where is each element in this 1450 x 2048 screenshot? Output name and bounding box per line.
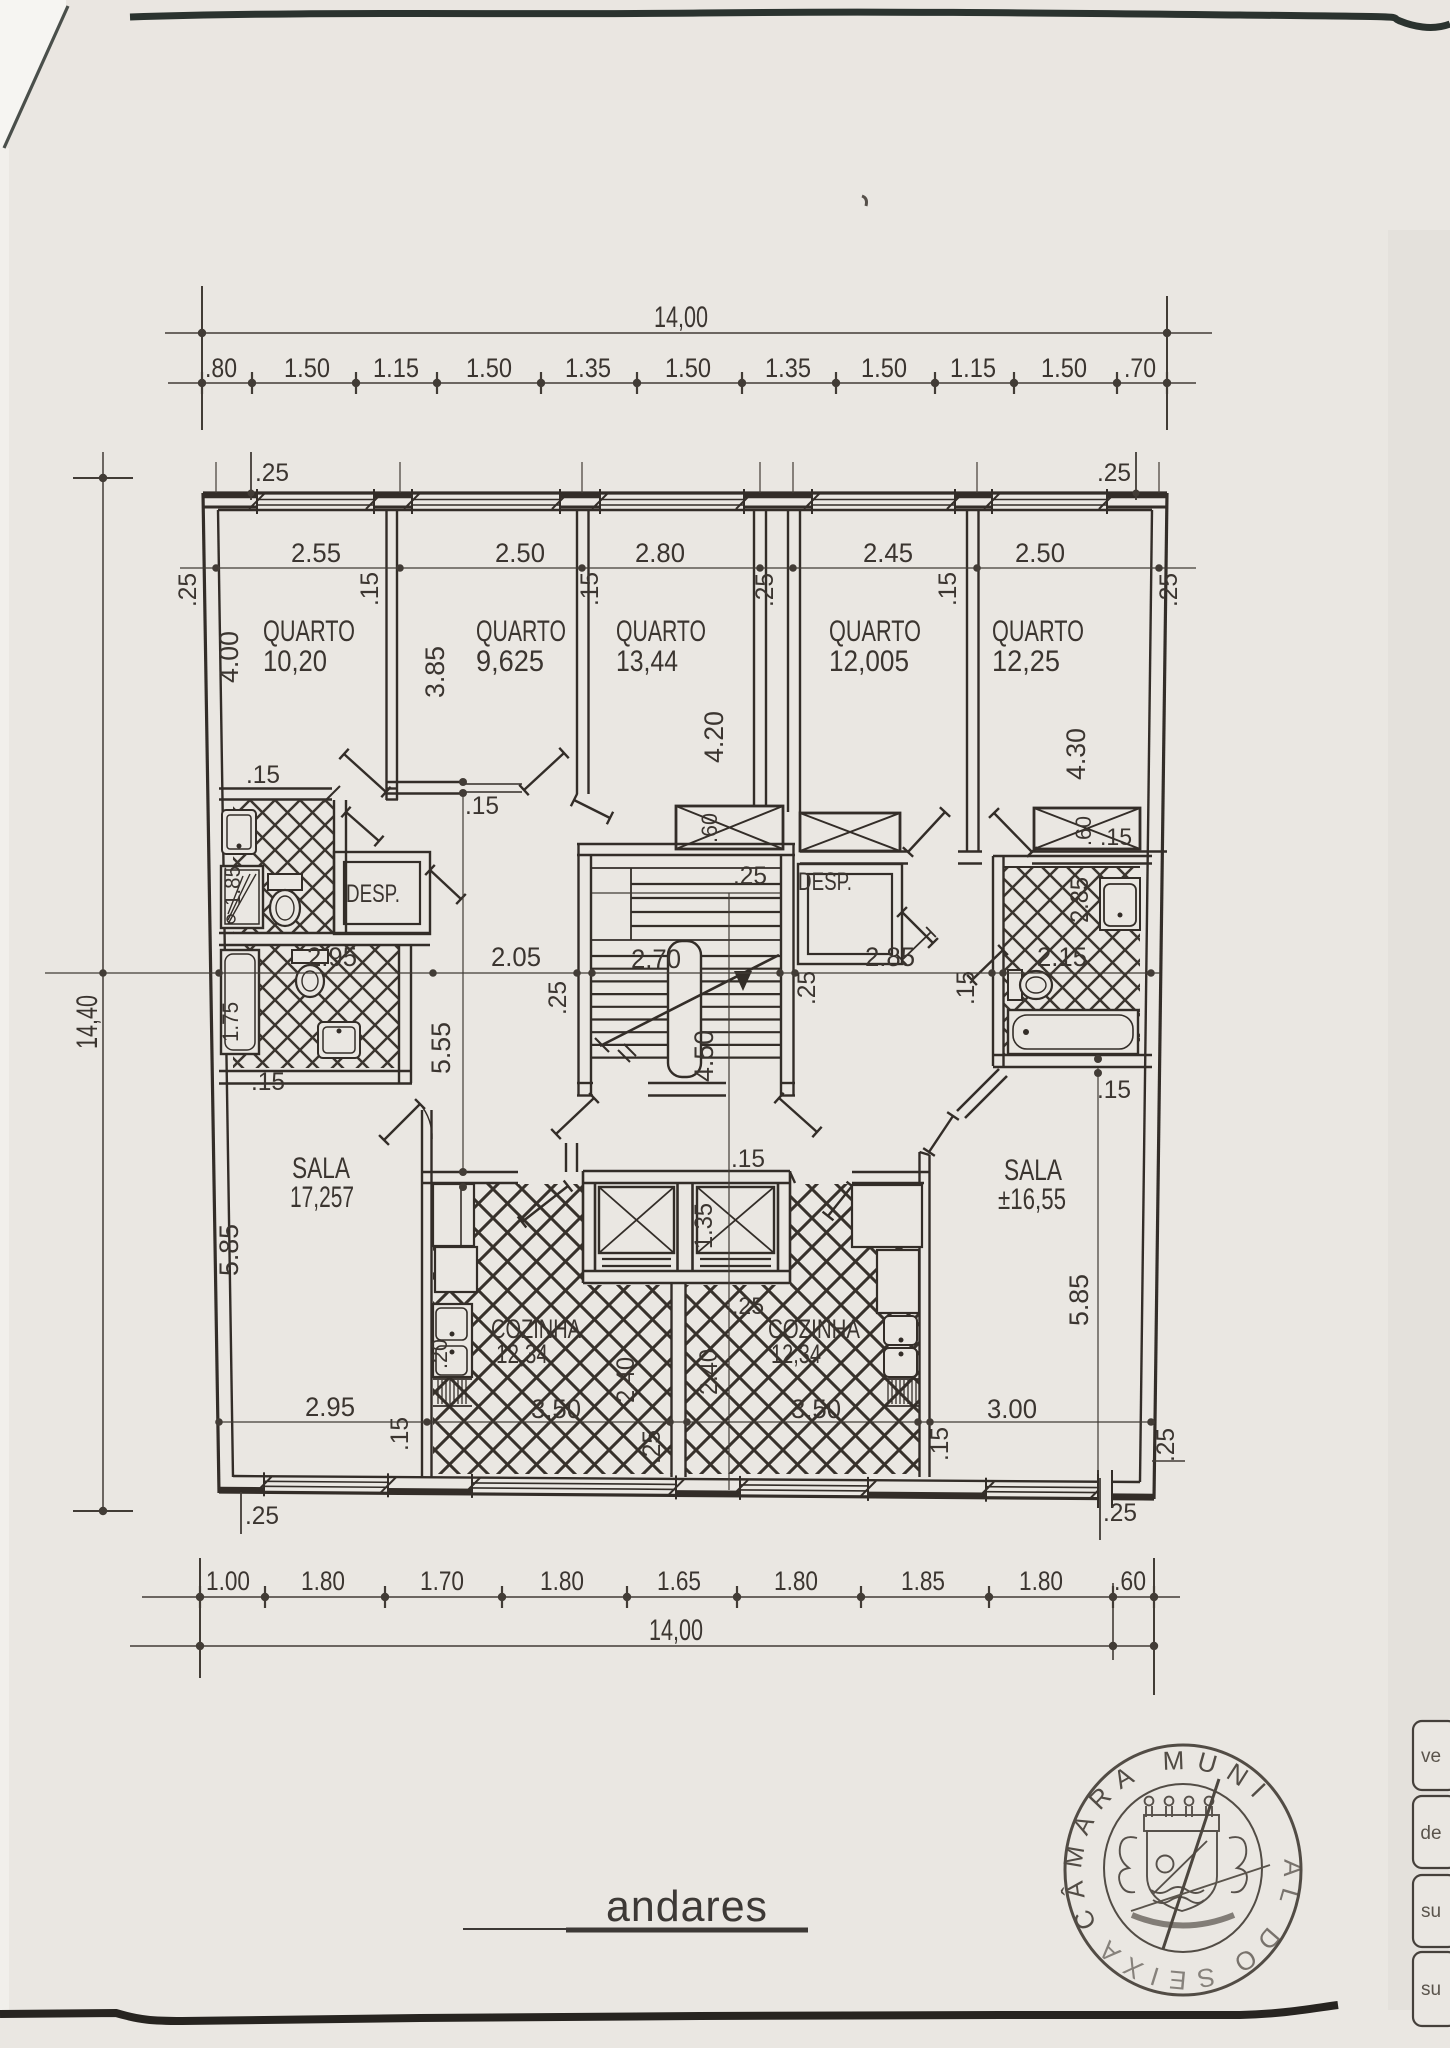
svg-text:1.80: 1.80 [1019,1566,1063,1596]
svg-text:.20: .20 [427,1339,452,1369]
svg-text:1.50: 1.50 [284,353,330,383]
svg-text:2.80: 2.80 [635,538,685,568]
svg-text:2.50: 2.50 [1015,538,1065,568]
svg-text:1.70: 1.70 [420,1566,464,1596]
svg-text:2.55: 2.55 [291,538,341,568]
svg-text:1.50: 1.50 [466,353,512,383]
svg-text:QUARTO: QUARTO [992,615,1084,648]
svg-text:.25: .25 [793,971,821,1005]
svg-text:5.85: 5.85 [1064,1274,1094,1326]
svg-text:3.85: 3.85 [420,646,450,698]
svg-text:1.50: 1.50 [861,353,907,383]
svg-text:9,625: 9,625 [476,645,544,678]
svg-text:12,005: 12,005 [829,645,909,678]
svg-text:4.30: 4.30 [1061,728,1091,780]
svg-text:1.85: 1.85 [220,866,245,906]
svg-text:.25: .25 [255,459,289,487]
svg-text:.15: .15 [934,572,962,606]
svg-text:.25: .25 [245,1502,279,1530]
svg-text:1.80: 1.80 [774,1566,818,1596]
svg-text:4.20: 4.20 [699,711,729,763]
svg-text:2.15: 2.15 [1037,942,1087,972]
svg-text:2.70: 2.70 [631,944,681,974]
svg-text:.25: .25 [544,981,572,1015]
svg-text:.15: .15 [1100,824,1132,851]
svg-text:.25: .25 [638,1430,666,1464]
svg-text:2.40: 2.40 [612,1357,640,1403]
svg-text:3.50: 3.50 [791,1394,841,1424]
svg-text:.15: .15 [465,792,499,820]
svg-text:andares: andares [606,1882,768,1931]
svg-text:QUARTO: QUARTO [263,615,355,648]
svg-text:1.35: 1.35 [690,1203,718,1249]
svg-text:1.50: 1.50 [665,353,711,383]
svg-text:QUARTO: QUARTO [829,615,921,648]
svg-text:2.85: 2.85 [865,942,915,972]
svg-text:.15: .15 [576,572,604,606]
svg-text:12,34: 12,34 [496,1339,548,1369]
svg-text:4.50: 4.50 [689,1030,719,1082]
svg-text:2.40: 2.40 [695,1349,723,1395]
svg-text:.25: .25 [1097,459,1131,487]
svg-text:.25: .25 [732,1293,764,1320]
svg-text:2.05: 2.05 [491,942,541,972]
svg-text:13,44: 13,44 [616,645,678,678]
svg-text:12,25: 12,25 [992,645,1060,678]
svg-text:.15: .15 [246,761,280,789]
svg-text:.15: .15 [926,1427,954,1461]
svg-text:1.85: 1.85 [901,1566,945,1596]
svg-text:.25: .25 [1152,1428,1180,1462]
svg-text:2.95: 2.95 [307,942,357,972]
svg-text:1.15: 1.15 [373,353,419,383]
svg-text:.15: .15 [356,572,384,606]
svg-text:.25: .25 [174,573,202,607]
svg-text:.15: .15 [731,1145,765,1173]
svg-text:.15: .15 [952,971,980,1005]
svg-text:.25: .25 [1103,1499,1137,1527]
svg-text:17,257: 17,257 [290,1181,354,1214]
svg-text:1.50: 1.50 [1041,353,1087,383]
svg-text:1.15: 1.15 [950,353,996,383]
svg-text:de: de [1420,1823,1441,1844]
svg-text:10,20: 10,20 [263,645,327,678]
svg-text:1.35: 1.35 [565,353,611,383]
svg-text:.80: .80 [205,353,237,383]
svg-text:ve: ve [1421,1746,1441,1767]
svg-text:4.00: 4.00 [214,631,244,683]
svg-text:QUARTO: QUARTO [616,615,706,648]
svg-text:.25: .25 [751,573,779,607]
svg-text:.60: .60 [1071,816,1096,846]
svg-text:2.45: 2.45 [863,538,913,568]
svg-text:.60: .60 [1114,1566,1146,1596]
svg-text:1.35: 1.35 [765,353,811,383]
svg-text:3.00: 3.00 [987,1394,1037,1424]
svg-text:14,40: 14,40 [71,995,104,1049]
svg-text:1.80: 1.80 [301,1566,345,1596]
svg-text:2.95: 2.95 [305,1392,355,1422]
svg-text:su: su [1421,1901,1441,1922]
svg-text:.15: .15 [251,1068,285,1096]
svg-text:14,00: 14,00 [654,301,708,334]
svg-text:3.50: 3.50 [531,1394,581,1424]
svg-text:1.75: 1.75 [218,1002,243,1042]
svg-text:1.65: 1.65 [657,1566,701,1596]
svg-text:.25: .25 [1155,573,1183,607]
svg-text:1.00: 1.00 [206,1566,250,1596]
svg-text:5.55: 5.55 [426,1022,456,1074]
svg-text:.60: .60 [697,813,722,843]
svg-text:.15: .15 [1097,1076,1131,1104]
svg-text:DESP.: DESP. [798,868,852,896]
svg-text:14,00: 14,00 [649,1614,703,1647]
svg-text:1.80: 1.80 [540,1566,584,1596]
svg-text:5.85: 5.85 [214,1224,244,1276]
svg-text:su: su [1421,1979,1441,2000]
svg-text:.70: .70 [1124,353,1156,383]
svg-text:12,34: 12,34 [771,1339,821,1369]
svg-text:.25: .25 [733,862,767,890]
svg-text:±16,55: ±16,55 [998,1183,1066,1216]
svg-text:DESP.: DESP. [346,880,400,908]
svg-text:.15: .15 [386,1417,414,1451]
svg-text:2.85: 2.85 [1066,877,1094,923]
svg-text:QUARTO: QUARTO [476,615,566,648]
svg-text:2.50: 2.50 [495,538,545,568]
